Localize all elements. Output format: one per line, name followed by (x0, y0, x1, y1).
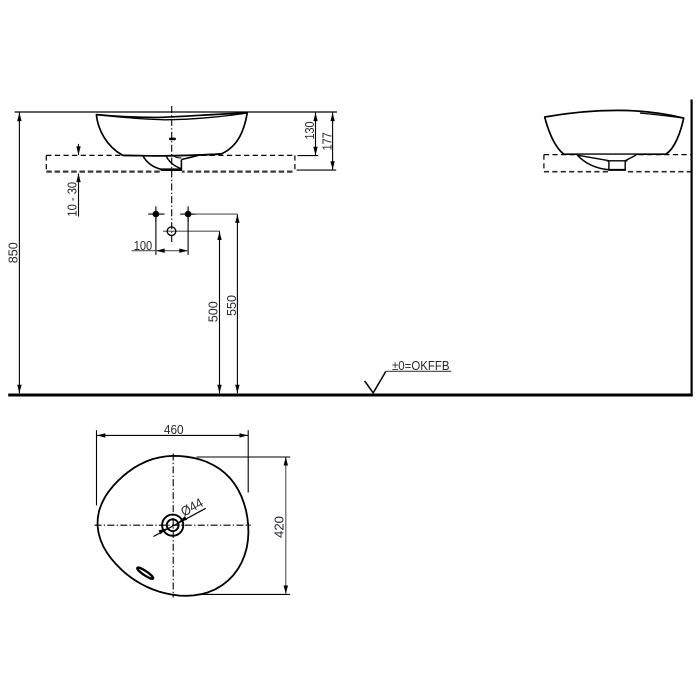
svg-text:850: 850 (5, 242, 20, 263)
svg-text:100: 100 (134, 238, 153, 253)
svg-text:460: 460 (164, 422, 184, 437)
svg-text:550: 550 (224, 295, 239, 316)
svg-text:10 - 30: 10 - 30 (65, 182, 80, 217)
svg-text:Ø44: Ø44 (178, 495, 205, 519)
svg-text:420: 420 (272, 516, 287, 538)
svg-text:177: 177 (320, 132, 335, 150)
svg-text:±0=OKFFB: ±0=OKFFB (392, 358, 450, 373)
svg-text:500: 500 (206, 301, 221, 322)
svg-text:130: 130 (302, 122, 317, 140)
